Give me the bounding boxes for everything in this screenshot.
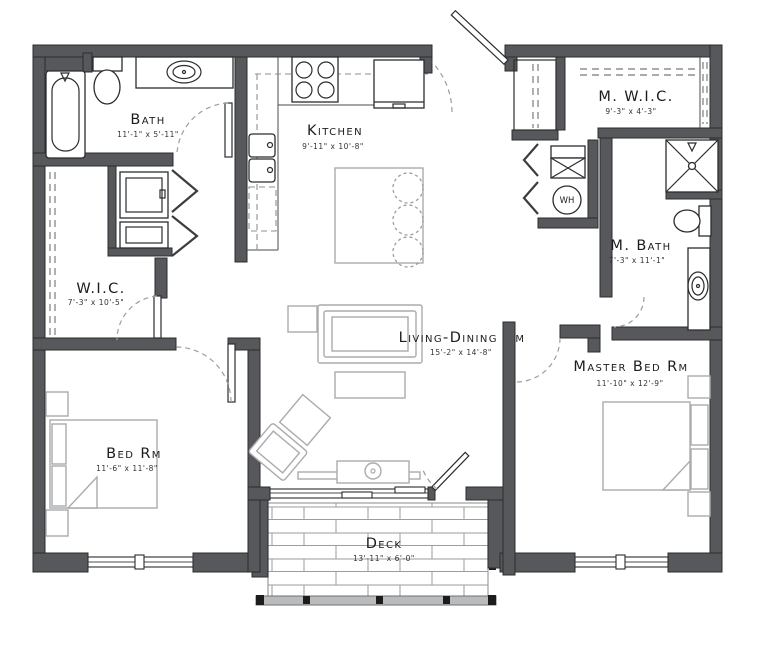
deck-area <box>252 500 504 605</box>
room-label-mbath: M. Bath <box>610 238 671 254</box>
wall-mwic-south <box>598 128 722 138</box>
wall-closet-south <box>108 248 172 256</box>
side-table <box>288 306 317 332</box>
room-dims-kitchen: 9'-11" x 10'-8" <box>302 142 364 151</box>
room-label-deck: Deck <box>366 536 403 552</box>
window-living-slider <box>270 487 428 498</box>
room-dims-deck: 13'-11" x 6'-0" <box>353 554 415 563</box>
water-heater: WH <box>553 186 581 214</box>
bathtub <box>46 71 85 158</box>
room-dims-bedrm: 11'-6" x 11'-8" <box>96 464 158 473</box>
washer-dryer <box>551 146 585 178</box>
wall-bedroom-south-a <box>33 553 88 572</box>
wall-master-north-stub <box>560 325 600 338</box>
toilet-bath <box>93 57 122 104</box>
furnace-unit <box>120 172 168 248</box>
wall-utility-east <box>588 140 598 228</box>
wall-exterior-top-right <box>505 45 722 57</box>
floor-plan-drawing: WH <box>0 0 768 645</box>
wall-exterior-right <box>710 45 722 572</box>
room-label-bath: Bath <box>130 112 165 128</box>
room-dims-living: 15'-2" x 14'-8" <box>430 348 492 357</box>
wall-bath-stub <box>83 53 92 72</box>
wall-living-south-a <box>248 487 270 500</box>
room-dims-bath: 11'-1" x 5'-11" <box>117 130 179 139</box>
room-label-bedrm: Bed Rm <box>106 446 162 462</box>
coffee-table <box>335 372 405 398</box>
wall-utility-south <box>538 218 598 228</box>
room-label-wic: W.I.C. <box>76 281 125 297</box>
room-dims-mwic: 9'-3" x 4'-3" <box>605 107 656 116</box>
vanity-mbath <box>688 248 710 330</box>
wall-kitchen-west <box>235 57 247 262</box>
room-dims-master: 11'-10" x 12'-9" <box>596 379 663 388</box>
nightstand <box>688 376 710 398</box>
wall-coat-closet-east <box>556 57 565 130</box>
bath-door-leaf <box>225 103 232 157</box>
window-master <box>575 555 668 569</box>
wall-coat-closet-south <box>512 130 558 140</box>
bedroom-door-leaf <box>228 344 235 402</box>
wall-exterior-top-left <box>33 45 432 57</box>
kitchen-island <box>335 168 423 267</box>
room-label-kitchen: Kitchen <box>307 123 363 139</box>
wall-wic-east <box>155 258 167 298</box>
wall-bedroom-north-a <box>33 338 176 350</box>
room-label-master: Master Bed Rm <box>573 359 688 375</box>
shower <box>666 140 718 192</box>
room-dims-mbath: 7'-3" x 11'-1" <box>609 256 666 265</box>
wall-master-south-b <box>668 553 722 572</box>
stove <box>292 57 338 102</box>
wall-mbath-west <box>600 138 612 297</box>
window-bedroom <box>88 555 193 569</box>
nightstand <box>688 492 710 516</box>
wall-tub-surround <box>45 57 87 71</box>
refrigerator <box>374 60 424 108</box>
room-dims-wic: 7'-3" x 10'-5" <box>68 298 125 307</box>
room-label-mwic: M. W.I.C. <box>598 89 673 105</box>
wall-closet-west <box>108 166 116 256</box>
nightstand <box>46 510 68 536</box>
wall-living-master-divider <box>503 322 515 575</box>
nightstand <box>46 392 68 416</box>
water-heater-label: WH <box>560 196 575 206</box>
vanity-bath <box>136 57 233 88</box>
wall-master-t-stub <box>588 338 600 352</box>
wic-door-leaf <box>154 296 161 338</box>
wall-exterior-left <box>33 45 45 572</box>
floor-plan-page: WH <box>0 0 768 645</box>
